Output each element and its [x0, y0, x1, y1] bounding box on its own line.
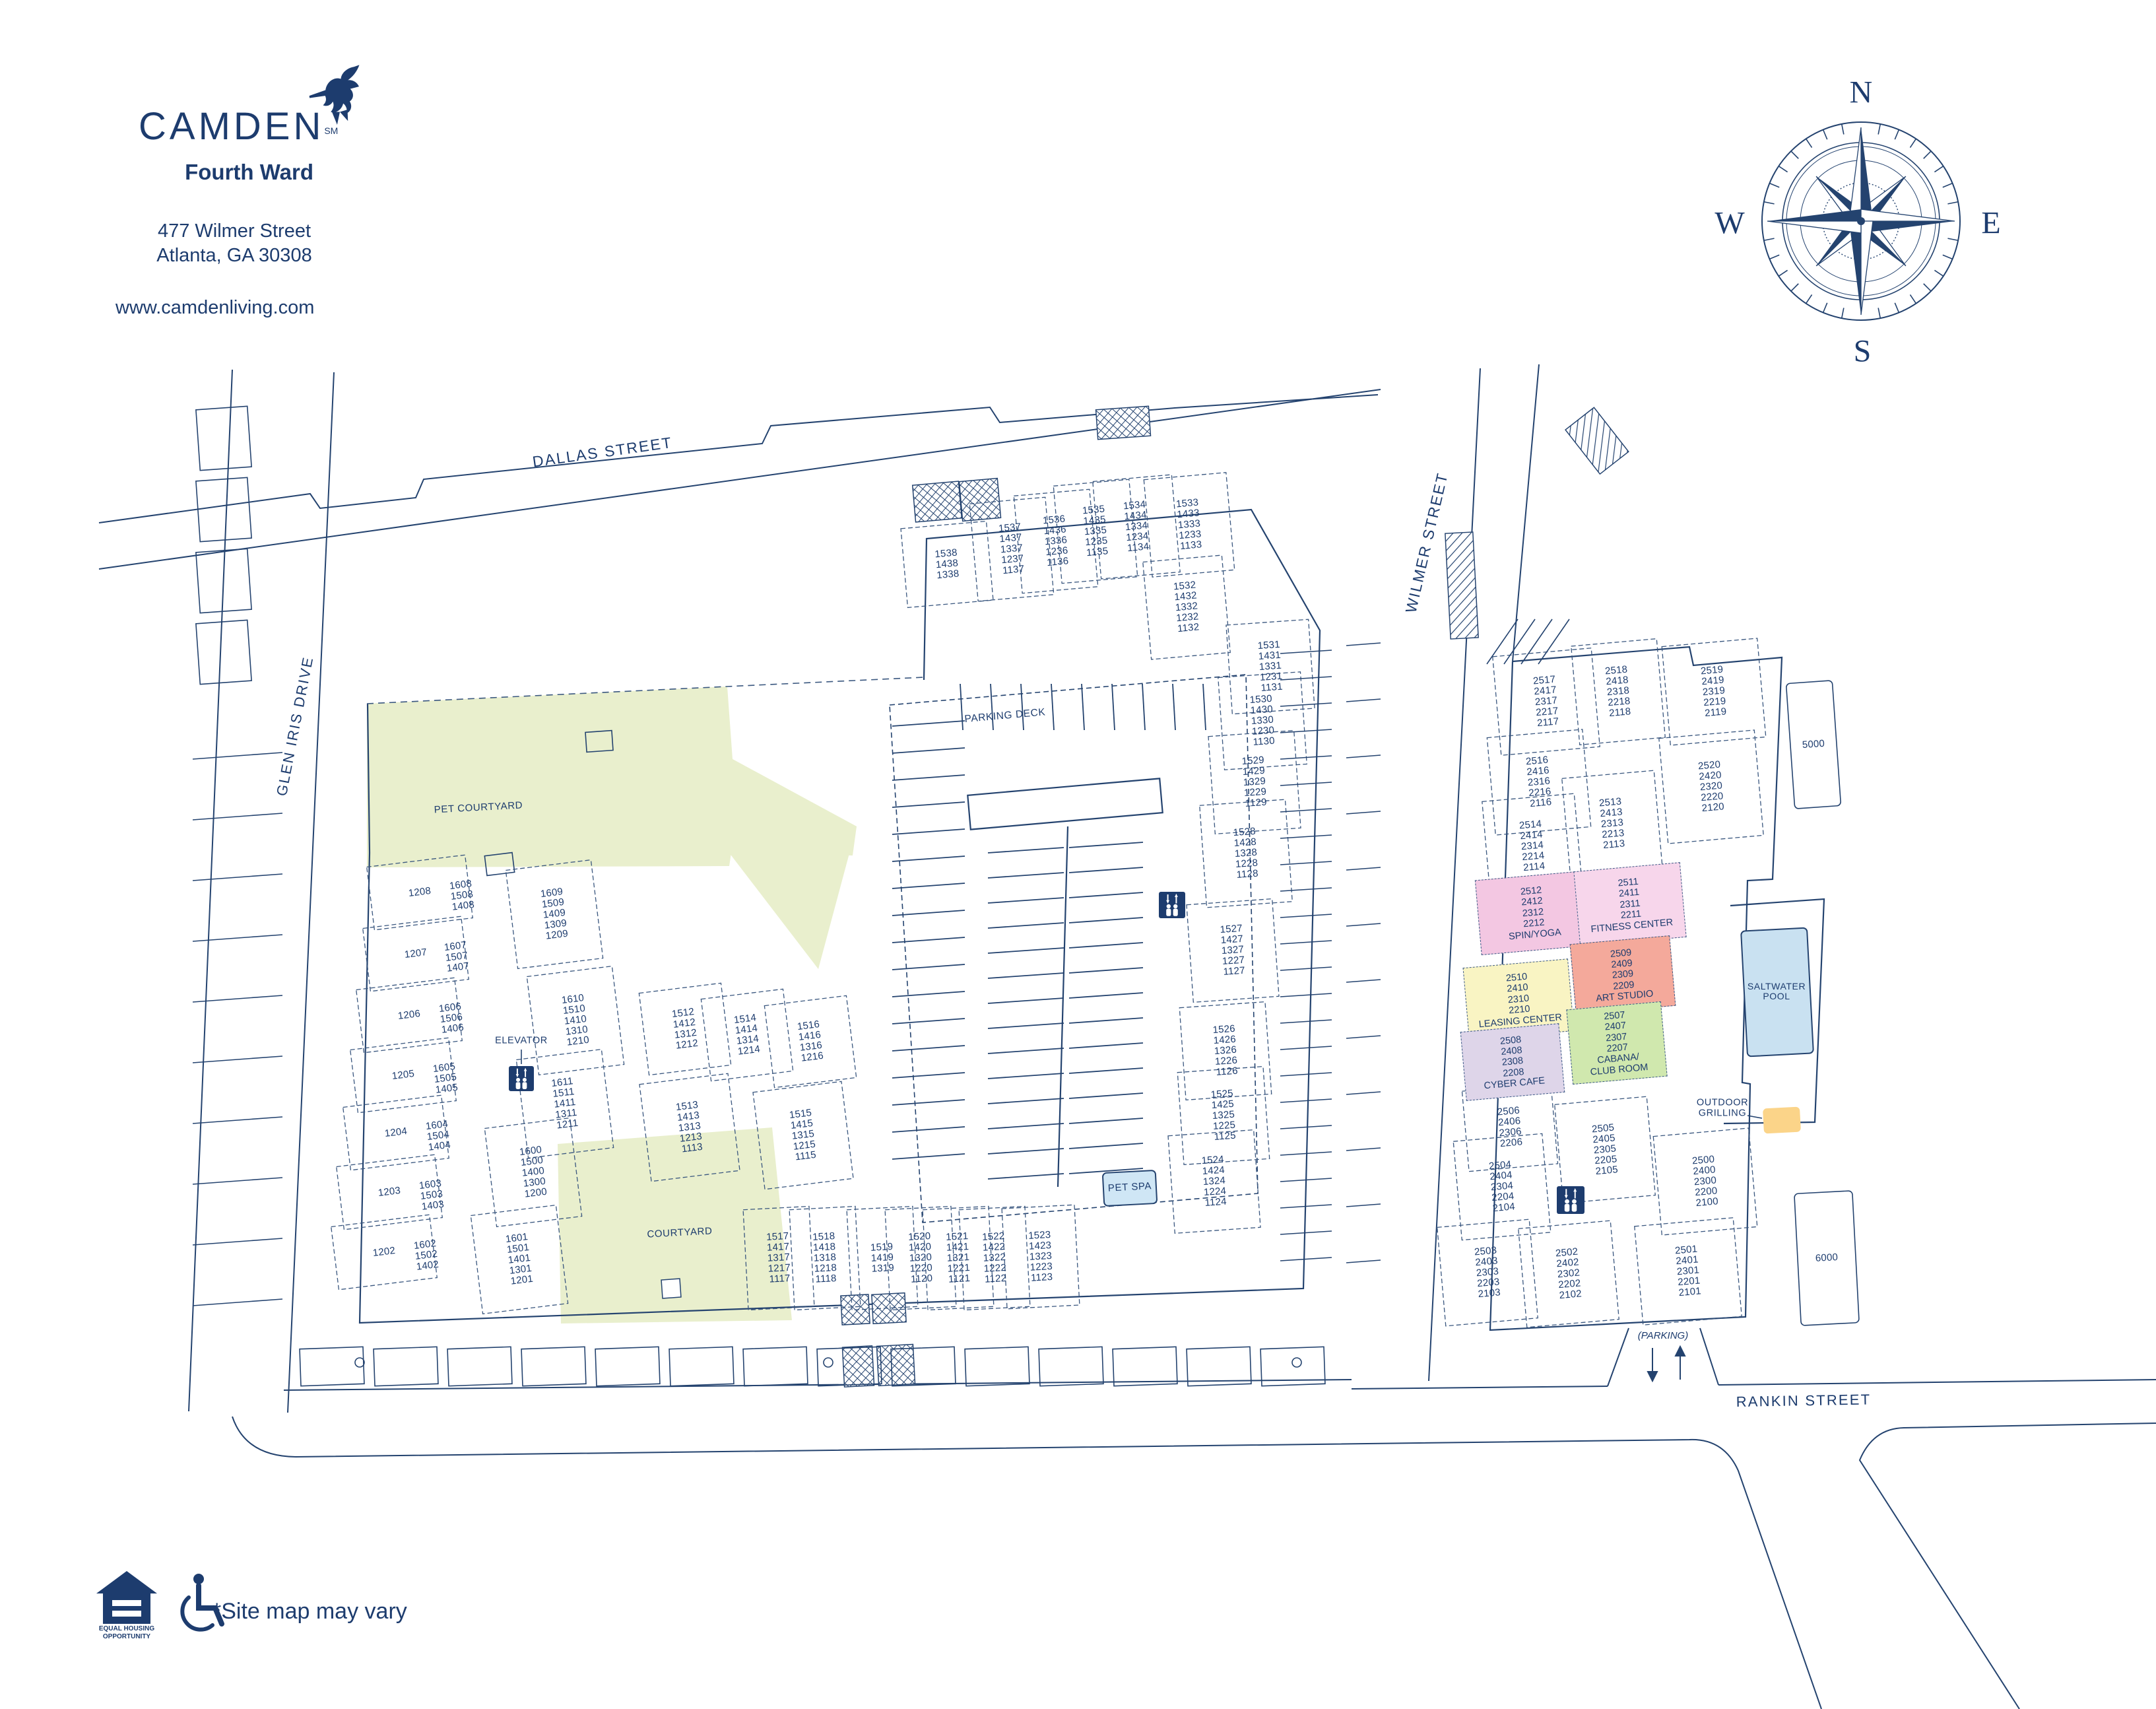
unit-group-1524: 1524 1424 1324 1224 1124: [1201, 1155, 1227, 1209]
unit-group-1512: 1512 1412 1312 1212: [671, 1007, 699, 1052]
unit-group-1523: 1523 1423 1323 1223 1123: [1028, 1230, 1053, 1284]
unit-group-1604: 1604 1504 1404: [425, 1119, 451, 1153]
label-parking-note: (PARKING): [1638, 1331, 1688, 1341]
label-street-rankin: RANKIN STREET: [1736, 1391, 1871, 1409]
unit-group-1522: 1522 1422 1322 1222 1122: [982, 1231, 1007, 1285]
unit-group-2517: 2517 2417 2317 2217 2117: [1532, 675, 1559, 729]
amenity-cabana-club-room: 2507 2407 2307 2207 CABANA/ CLUB ROOM: [1566, 1001, 1667, 1085]
site-map-page: CAMDENSM Fourth Ward 477 Wilmer StreetAt…: [0, 0, 2156, 1709]
brand-logo-text: CAMDENSM: [139, 104, 338, 149]
unit-group-1600: 1600 1500 1400 1300 1200: [519, 1145, 548, 1200]
unit-group-1528: 1528 1428 1328 1228 1128: [1233, 826, 1259, 881]
unit-group-1608: 1608 1508 1408: [449, 879, 475, 913]
unit-group-1607: 1607 1507 1407: [443, 940, 470, 974]
compass-east: E: [1981, 206, 2000, 240]
label-outdoor-grilling: OUTDOOR GRILLING: [1697, 1098, 1748, 1119]
unit-group-2501: 2501 2401 2301 2201 2101: [1674, 1244, 1701, 1299]
unit-group-1532: 1532 1432 1332 1232 1132: [1173, 580, 1200, 635]
unit-group-2519: 2519 2419 2319 2219 2119: [1700, 665, 1727, 720]
unit-group-1533: 1533 1433 1333 1233 1133: [1175, 498, 1202, 553]
unit-group-1208: 1208: [408, 886, 432, 899]
property-name: Fourth Ward: [158, 160, 313, 185]
unit-group-1609: 1609 1509 1409 1309 1209: [540, 887, 569, 942]
unit-group-1526: 1526 1426 1326 1226 1126: [1212, 1024, 1239, 1078]
unit-group-1602: 1602 1502 1402: [413, 1238, 440, 1273]
unit-group-1518: 1518 1418 1318 1218 1118: [812, 1231, 837, 1285]
unit-group-1516: 1516 1416 1316 1216: [797, 1019, 824, 1064]
label-saltwater-pool: SALTWATER POOL: [1748, 982, 1806, 1001]
unit-group-1520: 1520 1420 1320 1220 1120: [908, 1231, 933, 1285]
unit-group-2505: 2505 2405 2305 2205 2105: [1591, 1123, 1618, 1178]
map-labels-layer: CAMDENSM Fourth Ward 477 Wilmer StreetAt…: [0, 0, 2156, 1709]
unit-group-1534: 1534 1434 1334 1234 1134: [1123, 500, 1150, 554]
unit-group-1536: 1536 1436 1336 1236 1136: [1042, 514, 1069, 569]
unit-group-1204: 1204: [384, 1126, 408, 1139]
amenity-cyber-cafe: 2508 2408 2308 2208 CYBER CAFE: [1460, 1023, 1565, 1101]
disclaimer-text: *Site map may vary: [212, 1599, 407, 1625]
unit-group-1206: 1206: [397, 1009, 421, 1022]
unit-group-2520: 2520 2420 2320 2220 2120: [1697, 760, 1724, 815]
unit-group-1537: 1537 1437 1337 1237 1137: [998, 522, 1025, 577]
unit-group-1525: 1525 1425 1325 1225 1125: [1210, 1089, 1237, 1143]
unit-group-1538: 1538 1438 1338: [934, 548, 960, 582]
unit-group-1515: 1515 1415 1315 1215 1115: [789, 1108, 818, 1163]
label-courtyard: COURTYARD: [647, 1226, 713, 1240]
label-pet-spa: PET SPA: [1108, 1181, 1152, 1193]
equal-housing-label: EQUAL HOUSINGOPPORTUNITY: [88, 1625, 166, 1640]
website-link[interactable]: www.camdenliving.com: [115, 297, 314, 319]
unit-group-1517: 1517 1417 1317 1217 1117: [766, 1231, 791, 1285]
unit-group-2506: 2506 2406 2306 2206: [1497, 1106, 1523, 1150]
unit-group-2503: 2503 2403 2303 2203 2103: [1474, 1246, 1501, 1300]
amenity-spin-yoga: 2512 2412 2312 2212 SPIN/YOGA: [1475, 871, 1591, 955]
unit-group-1207: 1207: [404, 947, 428, 960]
label-street-dallas: DALLAS STREET: [531, 434, 673, 470]
unit-group-2518: 2518 2418 2318 2218 2118: [1604, 665, 1631, 720]
amenity-fitness-center: 2511 2411 2311 2211 FITNESS CENTER: [1573, 862, 1686, 947]
unit-group-1202: 1202: [372, 1246, 396, 1259]
label-parking-deck: PARKING DECK: [964, 707, 1046, 725]
unit-group-2500: 2500 2400 2300 2200 2100: [1691, 1155, 1718, 1209]
label-street-wilmer: WILMER STREET: [1403, 471, 1451, 615]
unit-group-1513: 1513 1413 1313 1213 1113: [675, 1100, 704, 1155]
compass-north: N: [1850, 75, 1873, 109]
label-bldg-6000: 6000: [1815, 1252, 1839, 1264]
unit-group-1521: 1521 1421 1321 1221 1121: [946, 1231, 971, 1285]
unit-group-2514: 2514 2414 2314 2214 2114: [1519, 819, 1546, 874]
unit-group-1519: 1519 1419 1319: [870, 1242, 895, 1275]
unit-group-1606: 1606 1506 1406: [438, 1001, 465, 1036]
unit-group-1611: 1611 1511 1411 1311 1211: [551, 1076, 579, 1131]
unit-group-2504: 2504 2404 2304 2204 2104: [1488, 1160, 1515, 1215]
label-street-glen-iris: GLEN IRIS DRIVE: [274, 655, 316, 797]
unit-group-2516: 2516 2416 2316 2216 2116: [1525, 755, 1552, 810]
unit-group-1205: 1205: [391, 1069, 415, 1082]
unit-group-1529: 1529 1429 1329 1229 1129: [1241, 755, 1268, 809]
label-elevator: ELEVATOR: [495, 1036, 548, 1046]
label-pet-courtyard: PET COURTYARD: [434, 800, 523, 815]
compass-west: W: [1715, 206, 1744, 240]
unit-group-2513: 2513 2413 2313 2213 2113: [1598, 797, 1625, 852]
unit-group-1527: 1527 1427 1327 1227 1127: [1220, 923, 1246, 978]
property-address: 477 Wilmer StreetAtlanta, GA 30308: [112, 219, 356, 268]
unit-group-1203: 1203: [377, 1186, 401, 1199]
unit-group-1535: 1535 1435 1335 1235 1135: [1082, 504, 1109, 559]
unit-group-1601: 1601 1501 1401 1301 1201: [505, 1232, 534, 1287]
unit-group-1610: 1610 1510 1410 1310 1210: [561, 993, 590, 1048]
unit-group-1514: 1514 1414 1314 1214: [733, 1013, 761, 1057]
unit-group-2502: 2502 2402 2302 2202 2102: [1555, 1247, 1582, 1302]
label-bldg-5000: 5000: [1802, 739, 1825, 751]
brand-servicemark: SM: [324, 125, 338, 136]
unit-group-1530: 1530 1430 1330 1230 1130: [1249, 694, 1276, 748]
unit-group-1605: 1605 1505 1405: [432, 1061, 459, 1096]
unit-group-1531: 1531 1431 1331 1231 1131: [1257, 640, 1284, 694]
unit-group-1603: 1603 1503 1403: [418, 1178, 445, 1213]
compass-south: S: [1854, 334, 1872, 368]
